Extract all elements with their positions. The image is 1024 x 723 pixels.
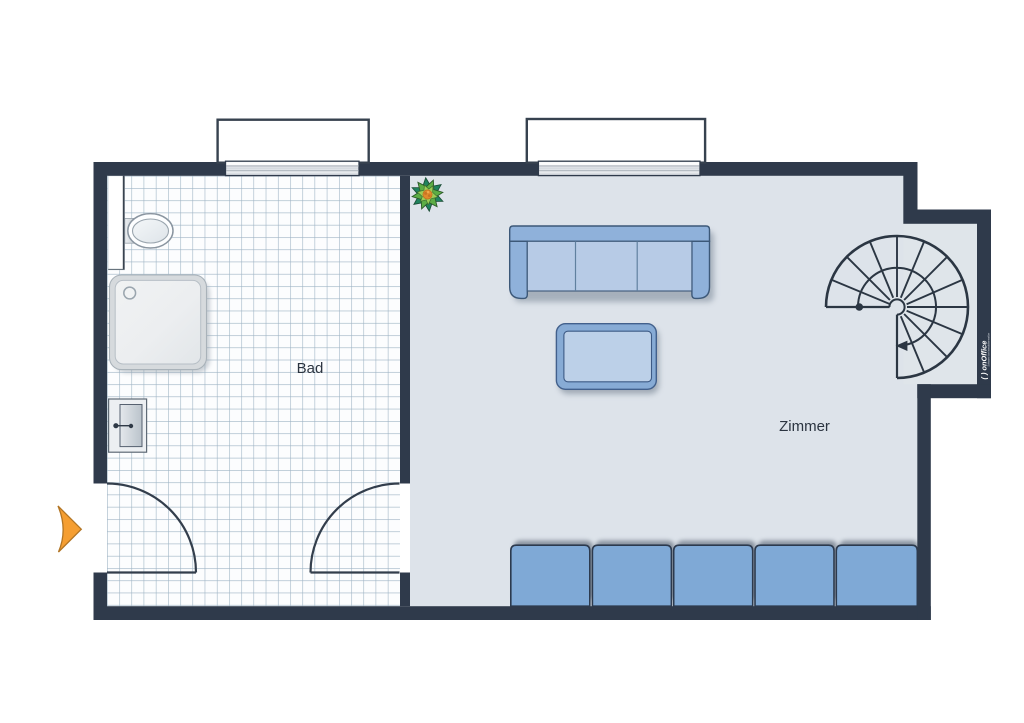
svg-text:Zimmer: Zimmer <box>779 418 830 435</box>
svg-text:Bad: Bad <box>297 360 324 377</box>
svg-text:Software fuer Immobilienmakler: Software fuer Immobilienmakler <box>987 333 990 367</box>
